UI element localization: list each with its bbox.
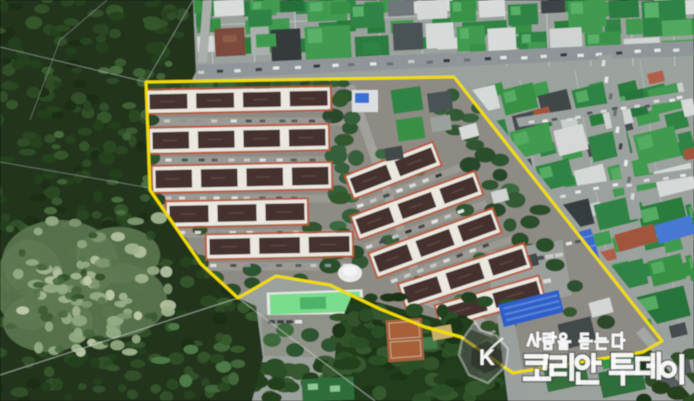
svg-text:K: K [479,345,495,370]
